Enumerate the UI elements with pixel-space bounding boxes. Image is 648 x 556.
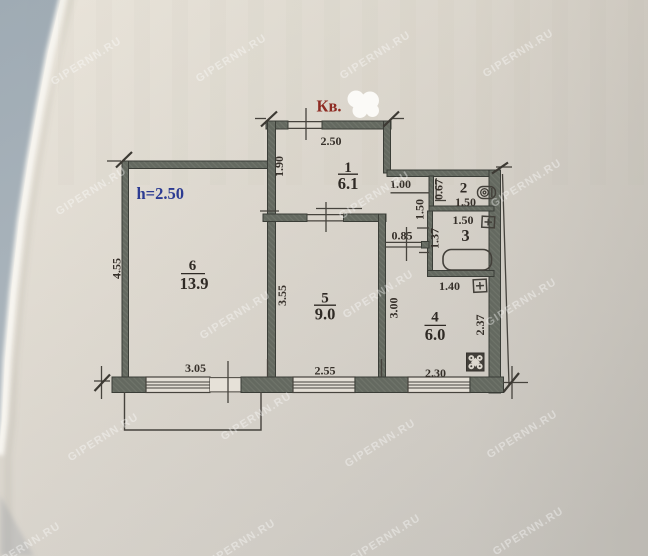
svg-text:4: 4 (431, 310, 439, 326)
svg-text:4.55: 4.55 (110, 258, 124, 279)
svg-text:2.55: 2.55 (315, 364, 336, 378)
svg-text:1.90: 1.90 (272, 156, 286, 177)
svg-text:2.50: 2.50 (321, 134, 342, 148)
svg-text:1.50: 1.50 (413, 199, 427, 220)
svg-text:3.05: 3.05 (185, 361, 206, 375)
svg-text:6: 6 (189, 258, 197, 274)
svg-text:2.30: 2.30 (425, 366, 446, 380)
svg-text:0.67: 0.67 (432, 179, 446, 200)
svg-text:6.1: 6.1 (338, 174, 359, 193)
svg-text:1.50: 1.50 (453, 213, 474, 227)
svg-text:Кв.: Кв. (317, 97, 342, 116)
svg-text:3: 3 (461, 226, 469, 245)
svg-text:6.0: 6.0 (425, 325, 446, 344)
svg-text:3.00: 3.00 (387, 298, 401, 319)
svg-text:1.50: 1.50 (455, 195, 476, 209)
svg-text:3.55: 3.55 (275, 285, 289, 306)
svg-text:9.0: 9.0 (315, 305, 336, 324)
svg-text:0.85: 0.85 (392, 229, 413, 243)
svg-text:1.37: 1.37 (428, 228, 442, 249)
svg-text:h=2.50: h=2.50 (137, 184, 184, 203)
svg-text:13.9: 13.9 (180, 274, 209, 293)
svg-text:1.40: 1.40 (439, 279, 460, 293)
